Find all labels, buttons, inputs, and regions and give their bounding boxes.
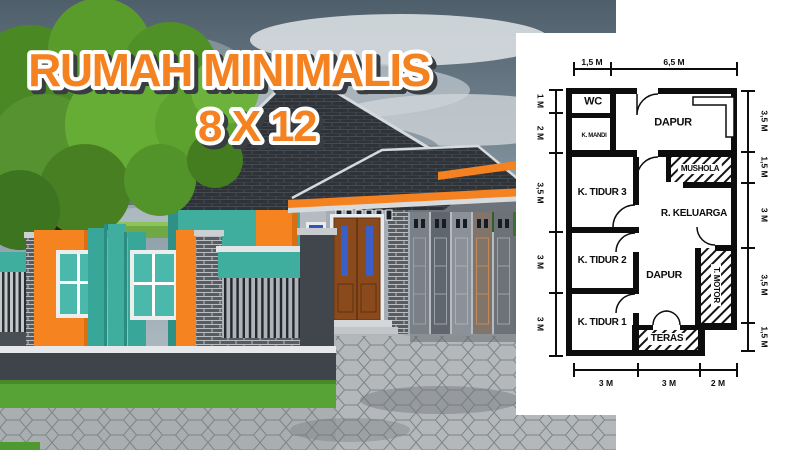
- room-label-dapur-top: DAPUR: [654, 118, 692, 129]
- kitchen-counter-icon: [693, 97, 734, 137]
- dim-bottom-2: 3 M: [662, 379, 676, 388]
- room-label-k-tidur-1: K. TIDUR 1: [578, 318, 627, 328]
- thumbnail-canvas: RUMAH MINIMALIS RUMAH MINIMALIS 8 X 12 8…: [0, 0, 800, 450]
- garage-door-slats: [410, 212, 513, 334]
- dim-top-1: 1,5 M: [581, 58, 602, 67]
- floor-plan-drawing: [516, 33, 800, 415]
- dim-bottom-1: 3 M: [599, 379, 613, 388]
- title-line-2: 8 X 12: [198, 102, 316, 151]
- room-label-teras: TERAS: [648, 333, 686, 345]
- room-label-k-tidur-3: K. TIDUR 3: [578, 188, 627, 198]
- room-label-k-mandi: K. MANDI: [582, 133, 607, 139]
- dim-left-2: 2 M: [536, 126, 545, 140]
- room-label-dapur-center: DAPUR: [646, 270, 682, 281]
- dim-bottom-3: 2 M: [711, 379, 725, 388]
- front-grass: [0, 380, 336, 412]
- dim-left-3: 3,5 M: [536, 182, 545, 203]
- dim-left-4: 3 M: [536, 255, 545, 269]
- dim-right-2: 1,5 M: [760, 156, 769, 177]
- title-line-1: RUMAH MINIMALIS: [28, 44, 430, 96]
- room-label-t-motor: T. MOTOR: [711, 264, 721, 306]
- dim-right-3: 3 M: [760, 208, 769, 222]
- dim-right-5: 1,5 M: [760, 326, 769, 347]
- dim-left-1: 1 M: [536, 94, 545, 108]
- fence-base-cap: [0, 346, 336, 353]
- room-label-wc: WC: [584, 97, 602, 108]
- dim-top-2: 6,5 M: [663, 58, 684, 67]
- room-label-r-keluarga: R. KELUARGA: [661, 209, 727, 219]
- dim-right-4: 3,5 M: [760, 274, 769, 295]
- room-label-mushola: MUSHOLA: [678, 164, 722, 174]
- room-label-k-tidur-2: K. TIDUR 2: [578, 256, 627, 266]
- dim-left-5: 3 M: [536, 317, 545, 331]
- floor-plan: WC K. MANDI DAPUR MUSHOLA K. TIDUR 3 R. …: [516, 33, 800, 415]
- dim-right-1: 3,5 M: [760, 110, 769, 131]
- front-door: [330, 214, 384, 320]
